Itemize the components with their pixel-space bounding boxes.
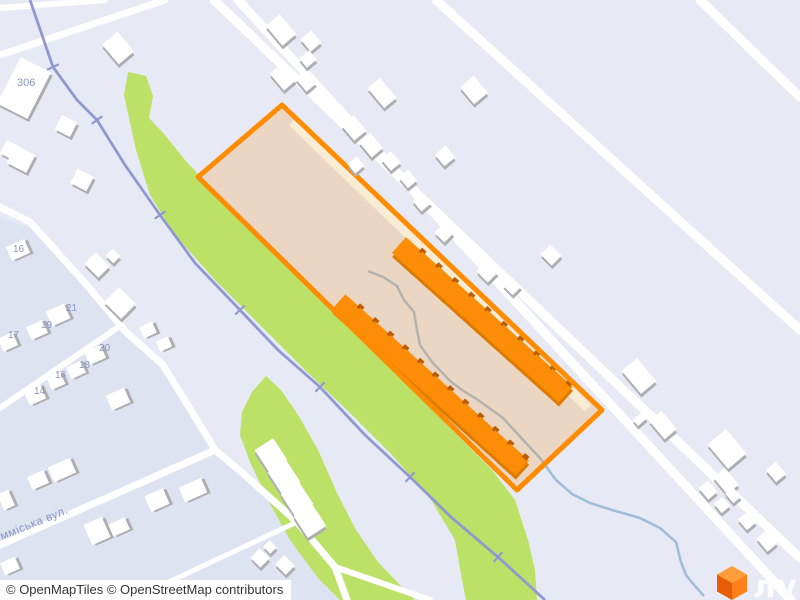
house-number-label: 16 xyxy=(55,370,67,381)
house-number-label: 17 xyxy=(8,330,20,341)
attribution-text[interactable]: © OpenMapTiles © OpenStreetMap contribut… xyxy=(6,582,283,597)
house-number-label: 16 xyxy=(13,244,25,255)
house-number-label: 306 xyxy=(17,77,35,89)
lun-logo[interactable]: лун xyxy=(717,566,800,600)
house-number-label: 21 xyxy=(66,303,78,314)
attribution-bar[interactable]: © OpenMapTiles © OpenStreetMap contribut… xyxy=(0,580,291,600)
map-viewport[interactable]: мміська вул. 3061621191720181614 лун xyxy=(0,0,800,600)
lun-logo-text: лун xyxy=(753,569,800,600)
house-number-label: 20 xyxy=(99,343,111,354)
house-number-label: 14 xyxy=(34,386,46,397)
house-number-label: 19 xyxy=(41,320,53,331)
map-canvas[interactable]: мміська вул. 3061621191720181614 лун xyxy=(0,0,800,600)
house-number-label: 18 xyxy=(79,360,91,371)
